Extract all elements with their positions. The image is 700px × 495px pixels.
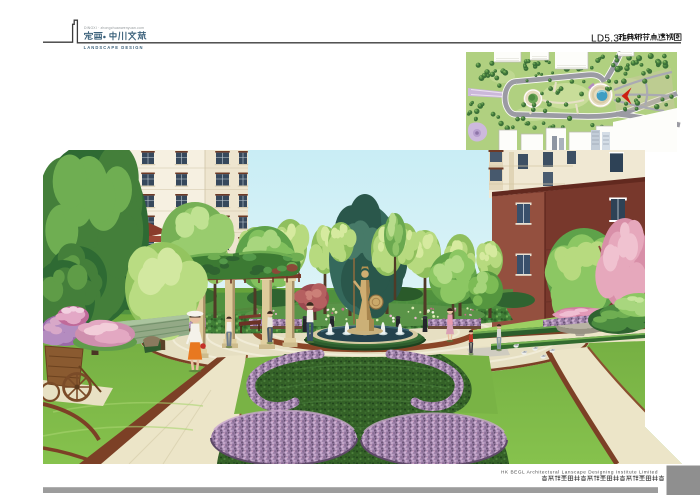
svg-text:HK BEGL Architectural Lanscape: HK BEGL Architectural Lanscape Designing… xyxy=(501,469,658,474)
svg-text:DINGXI · zhongchuanwenyuan.com: DINGXI · zhongchuanwenyuan.com xyxy=(84,26,144,30)
svg-text:LD5.3: LD5.3 xyxy=(591,33,619,44)
svg-text:LANDSCAPE DESIGN: LANDSCAPE DESIGN xyxy=(84,45,144,50)
